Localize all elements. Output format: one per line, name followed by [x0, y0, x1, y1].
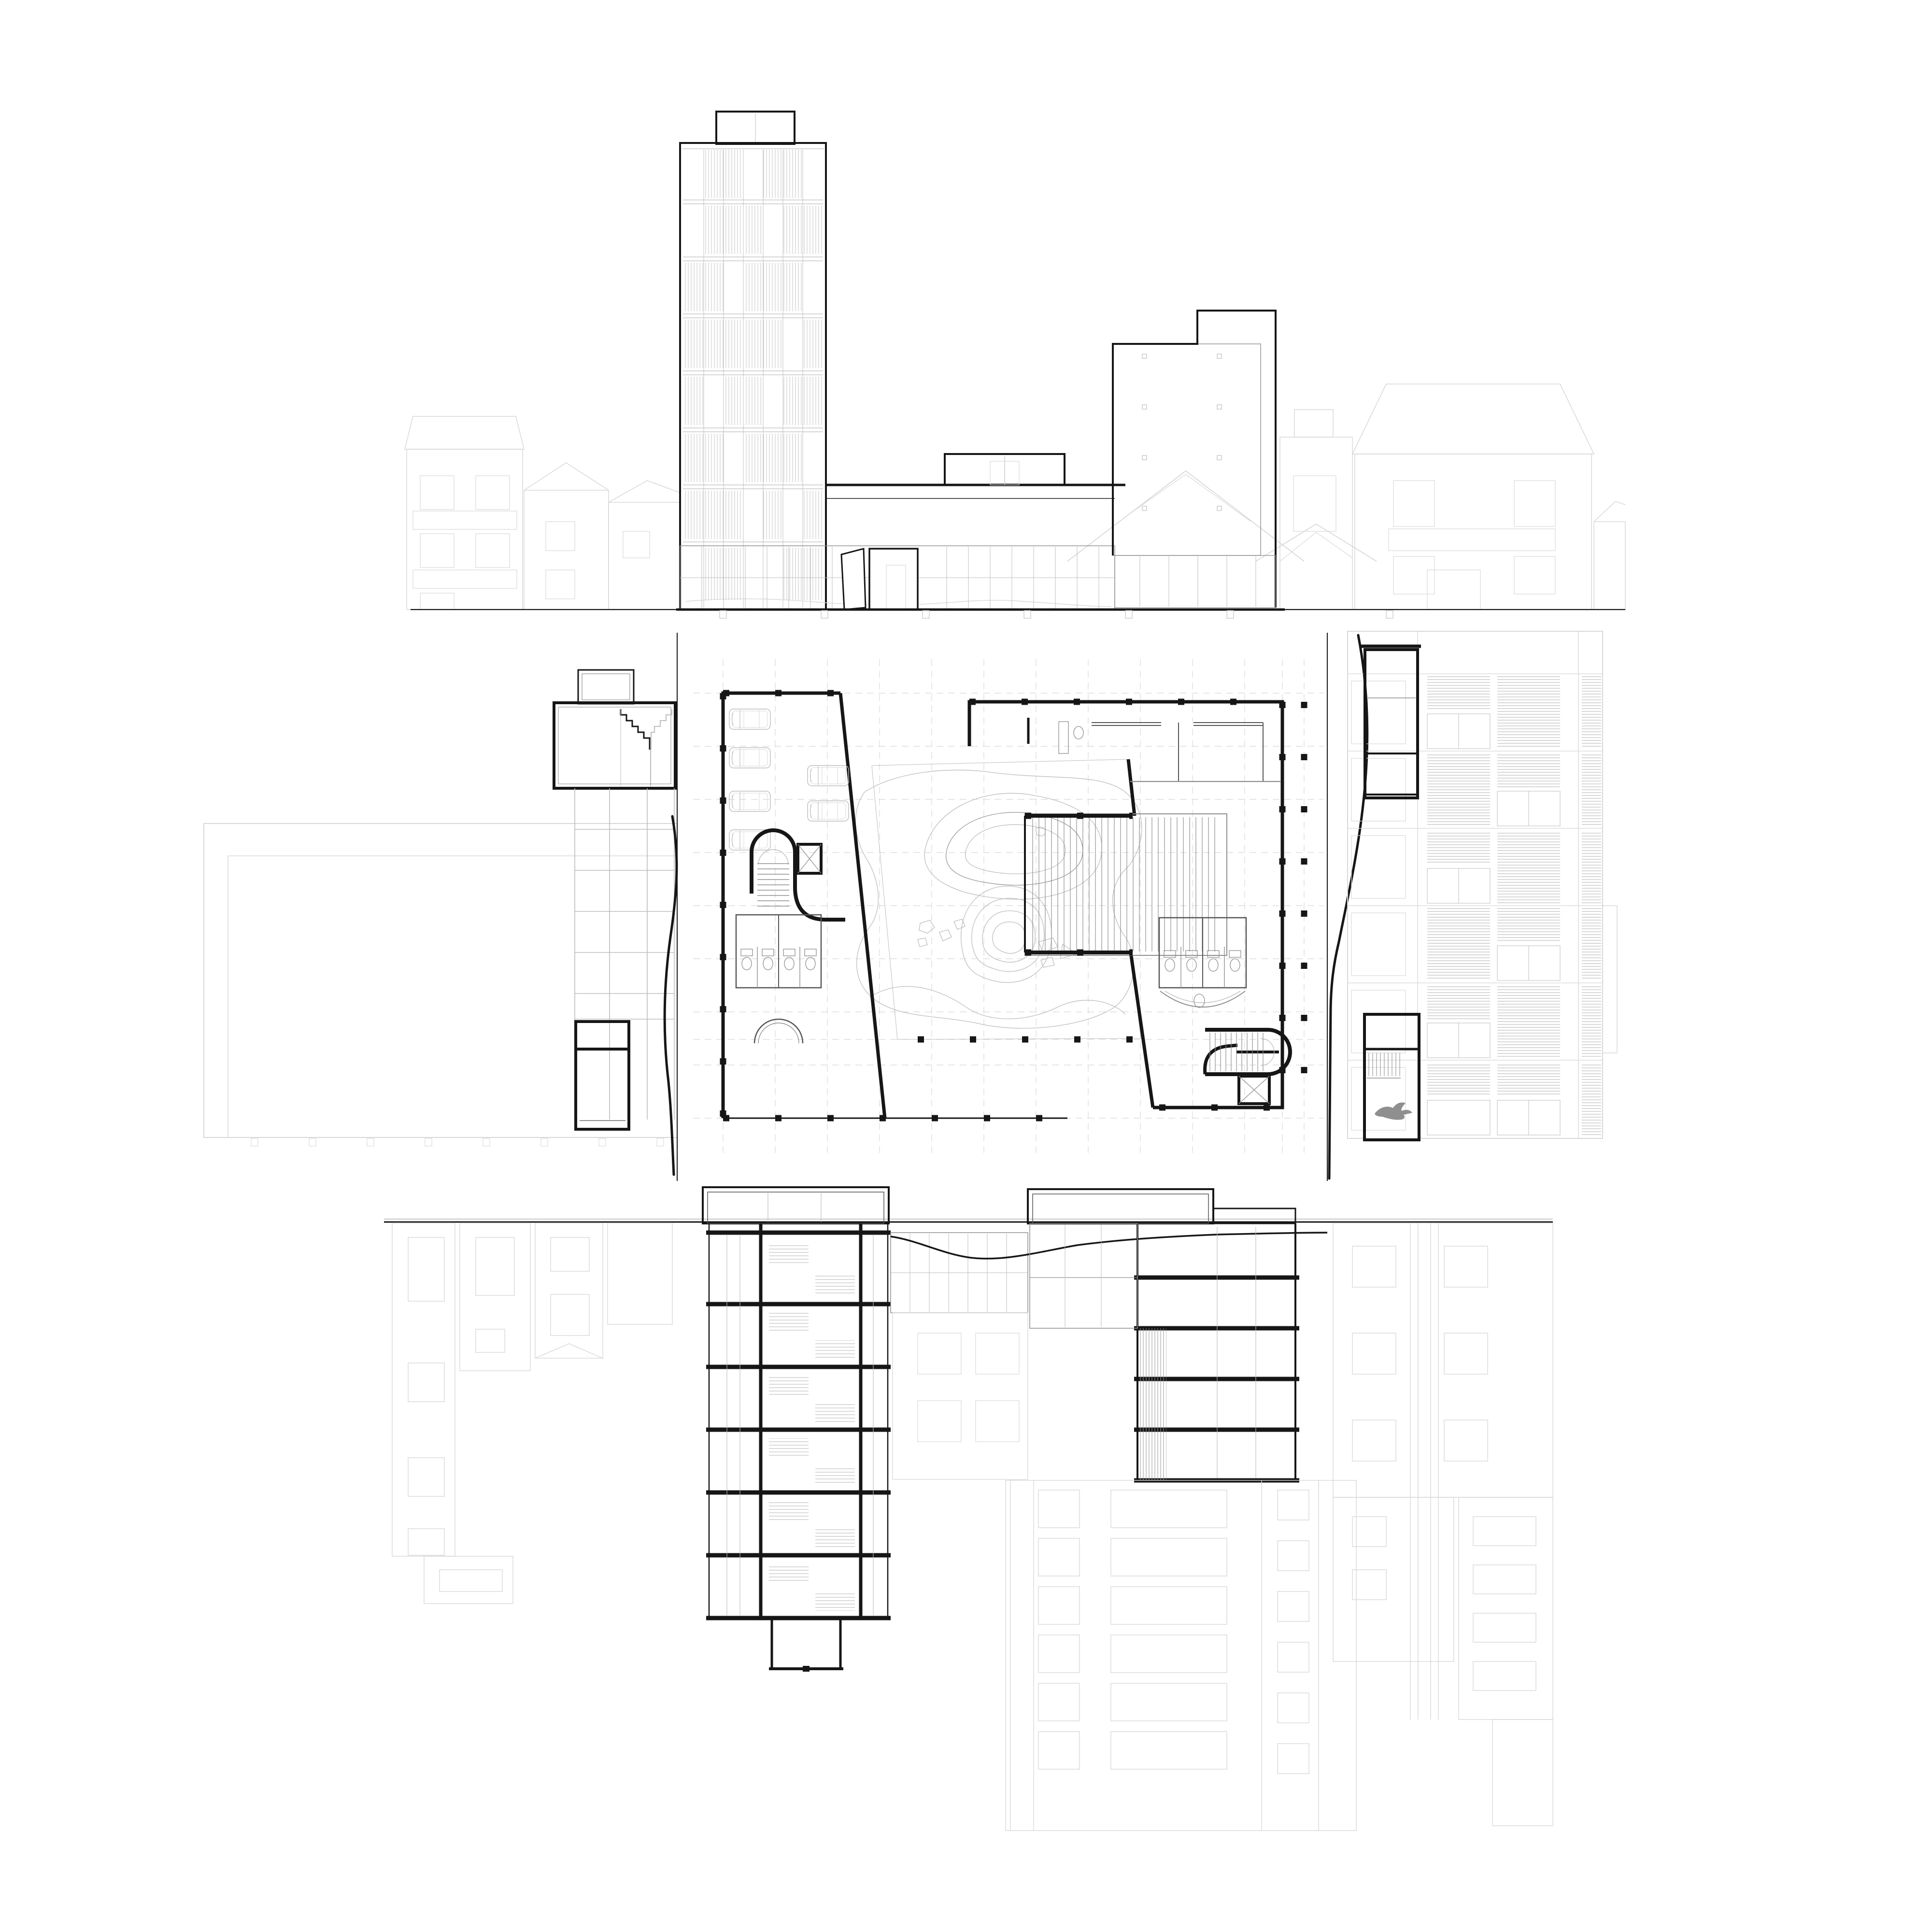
tower-elevation — [680, 112, 826, 610]
west-stair-pavilion — [554, 670, 675, 788]
context-below-left — [392, 1223, 672, 1604]
top-ground-line — [411, 610, 1625, 618]
west-facade-strip — [575, 788, 674, 1129]
stair-flight-section-light — [651, 709, 672, 750]
east-building-section — [1030, 1223, 1299, 1480]
parking — [729, 709, 849, 850]
deck-pavilion-east — [1028, 1189, 1295, 1223]
formwork-ties — [1142, 354, 1222, 511]
louver-strip — [1139, 1328, 1166, 1480]
concrete-ground-glazing — [1140, 556, 1256, 607]
right-elevation — [1348, 631, 1617, 1140]
northwest-stair — [752, 830, 845, 920]
context-houses-left — [405, 416, 680, 610]
tower-section — [706, 1223, 891, 1669]
stair-flight-section-dark — [621, 709, 650, 750]
plinth-deck — [826, 454, 1125, 498]
hedge-line-east — [1329, 635, 1367, 1179]
plinth-glazing — [680, 546, 1115, 610]
context-below-right — [1006, 1223, 1553, 1831]
concrete-building-elevation — [1113, 311, 1276, 608]
diagonal-wall-east-upper — [1128, 759, 1135, 816]
deck-pavilion-west — [703, 1187, 889, 1223]
northeast-rooms — [1028, 718, 1281, 781]
architectural-drawing — [0, 0, 1932, 1932]
west-stair-box — [576, 1022, 629, 1129]
drawing-sheet — [0, 0, 1932, 1932]
context-houses-right — [1280, 384, 1625, 610]
structural-grid — [693, 659, 1323, 1154]
tower-slabs — [706, 1233, 891, 1618]
floor-plan — [665, 633, 1367, 1181]
glazed-bridge-section — [891, 1233, 1028, 1479]
top-elevation — [405, 112, 1625, 618]
bird-silhouette — [1375, 1102, 1412, 1120]
right-elevation-sidewing — [1603, 906, 1617, 1053]
left-elevation-ticks — [251, 1138, 664, 1146]
curved-bench — [1160, 991, 1245, 1007]
ground-ticks — [720, 611, 1393, 618]
terrain-section-line — [891, 1233, 1327, 1259]
southeast-stair — [1205, 1030, 1290, 1104]
courtyard-ramp — [1025, 814, 1227, 955]
left-elevation — [204, 824, 677, 1146]
bridge-box-upper — [1361, 646, 1421, 798]
southwest-toilets — [736, 915, 821, 1043]
diagonal-wall-east-lower — [1131, 952, 1153, 1108]
bottom-section — [384, 1187, 1553, 1831]
stair-box-lower — [1364, 1014, 1419, 1140]
